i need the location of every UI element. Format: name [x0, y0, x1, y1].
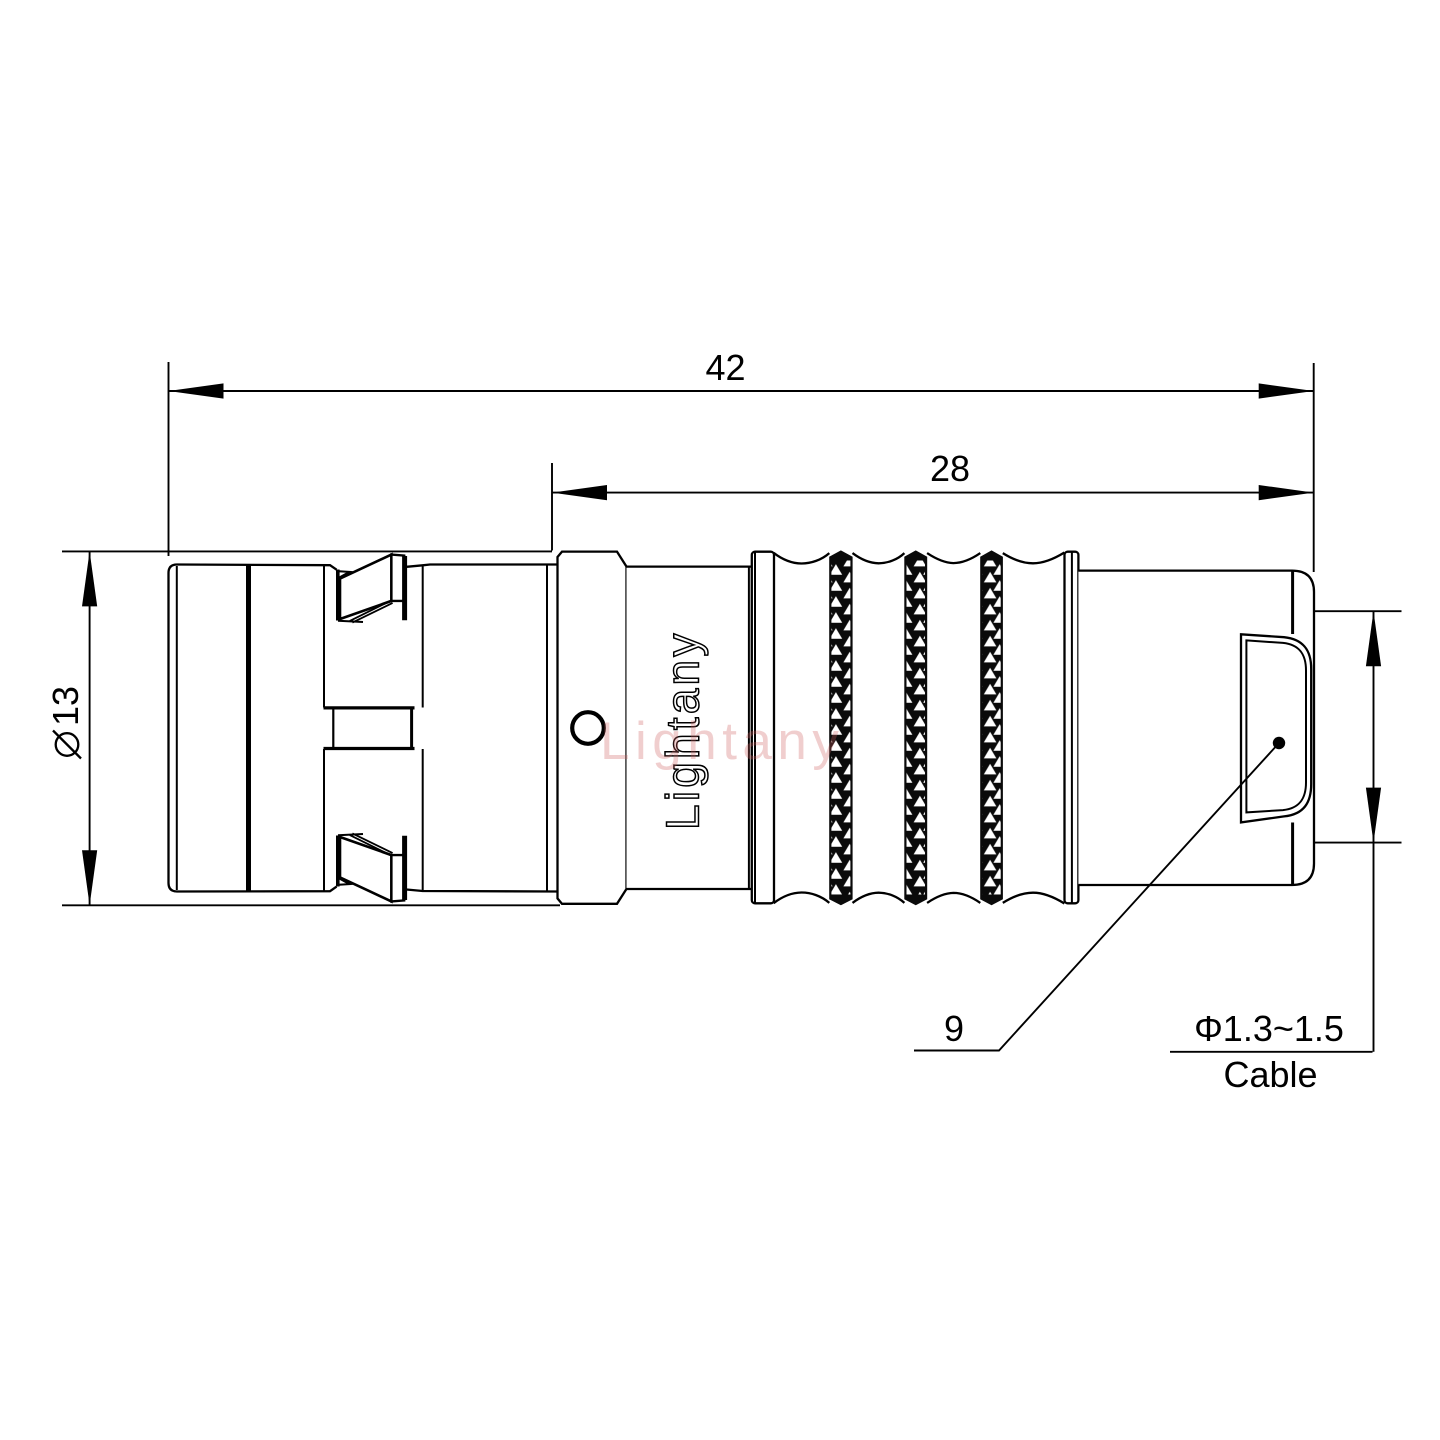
svg-text:Φ1.3~1.5: Φ1.3~1.5 [1194, 1008, 1344, 1049]
svg-text:Cable: Cable [1223, 1054, 1317, 1095]
svg-text:Lightany: Lightany [600, 712, 844, 771]
svg-text:42: 42 [705, 347, 745, 388]
svg-text:13: 13 [45, 686, 86, 726]
svg-text:28: 28 [930, 448, 970, 489]
svg-text:9: 9 [944, 1008, 964, 1049]
